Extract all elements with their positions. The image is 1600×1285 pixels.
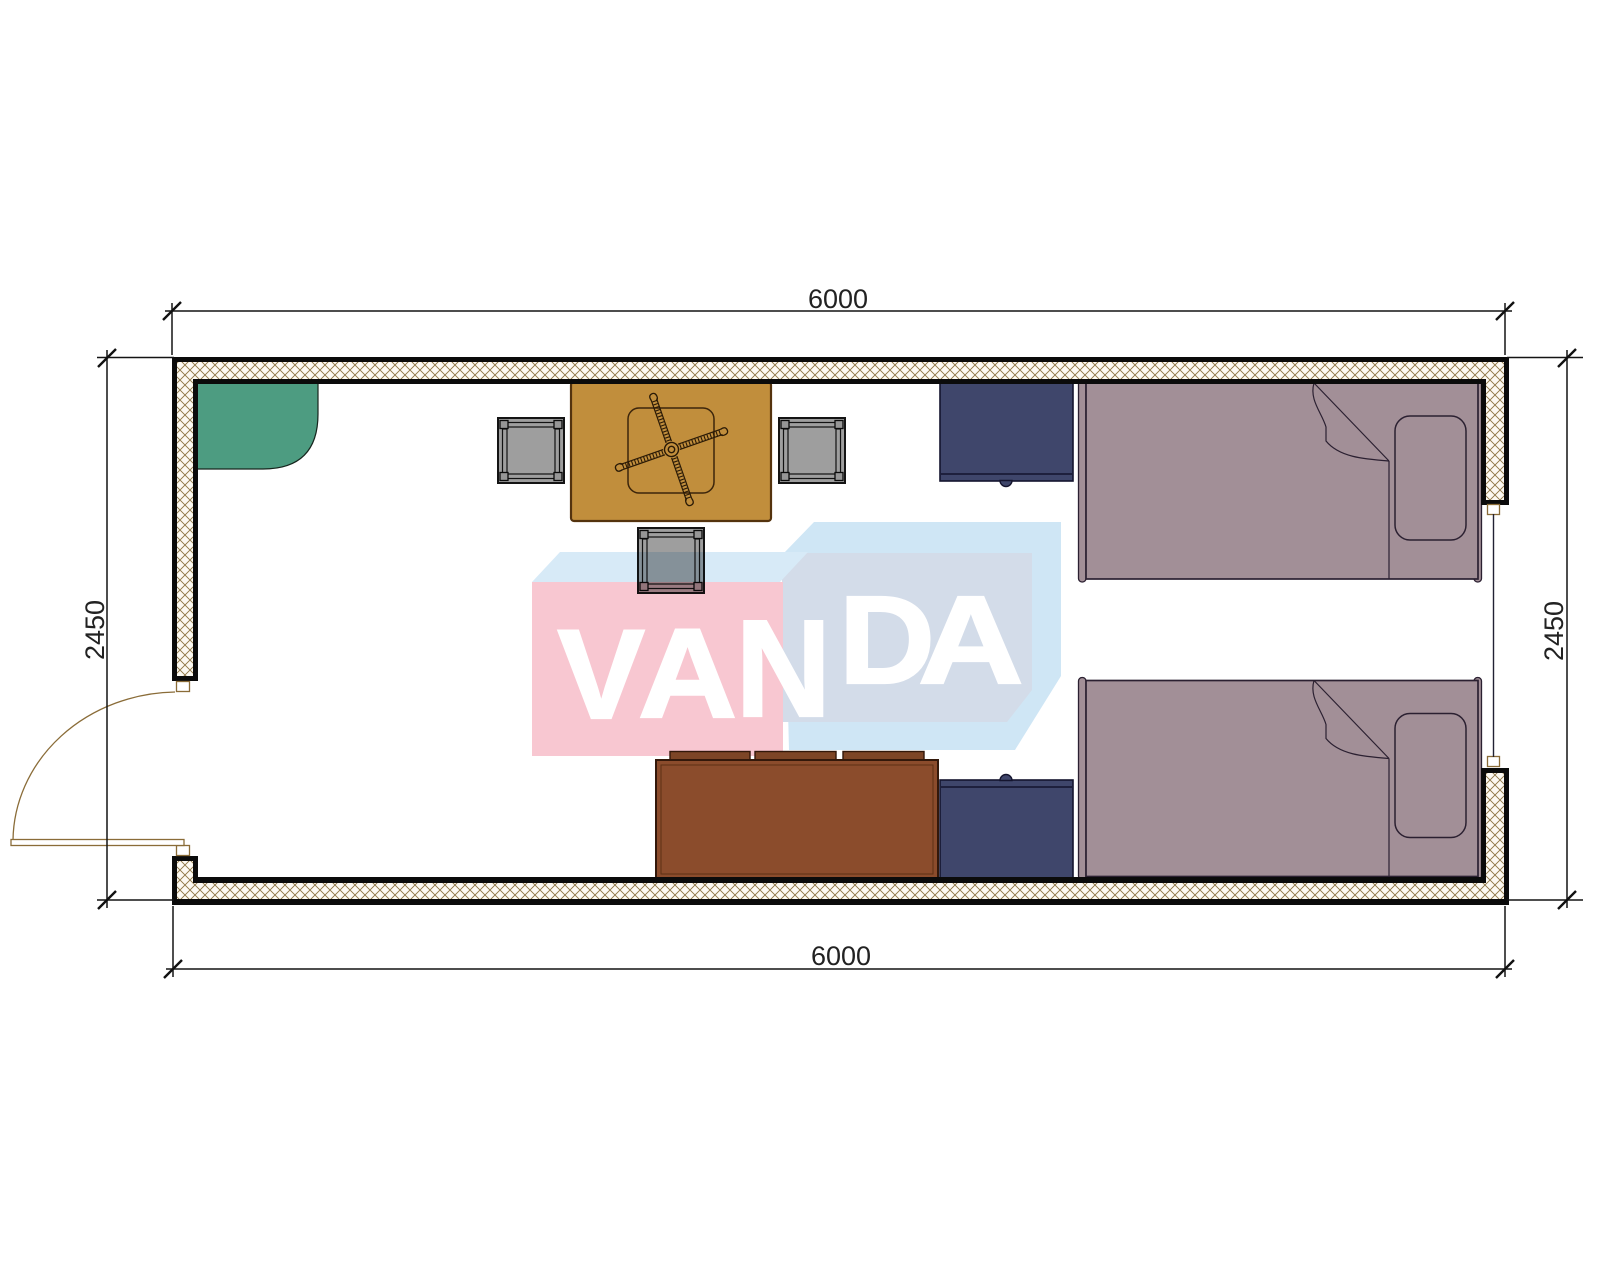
svg-text:A: A	[918, 570, 1024, 710]
svg-text:6000: 6000	[808, 284, 868, 314]
svg-text:N: N	[736, 592, 832, 746]
svg-text:2450: 2450	[1539, 601, 1569, 661]
svg-text:6000: 6000	[811, 941, 871, 971]
svg-text:A: A	[638, 603, 737, 745]
svg-text:2450: 2450	[80, 600, 110, 660]
svg-text:V: V	[558, 604, 645, 746]
